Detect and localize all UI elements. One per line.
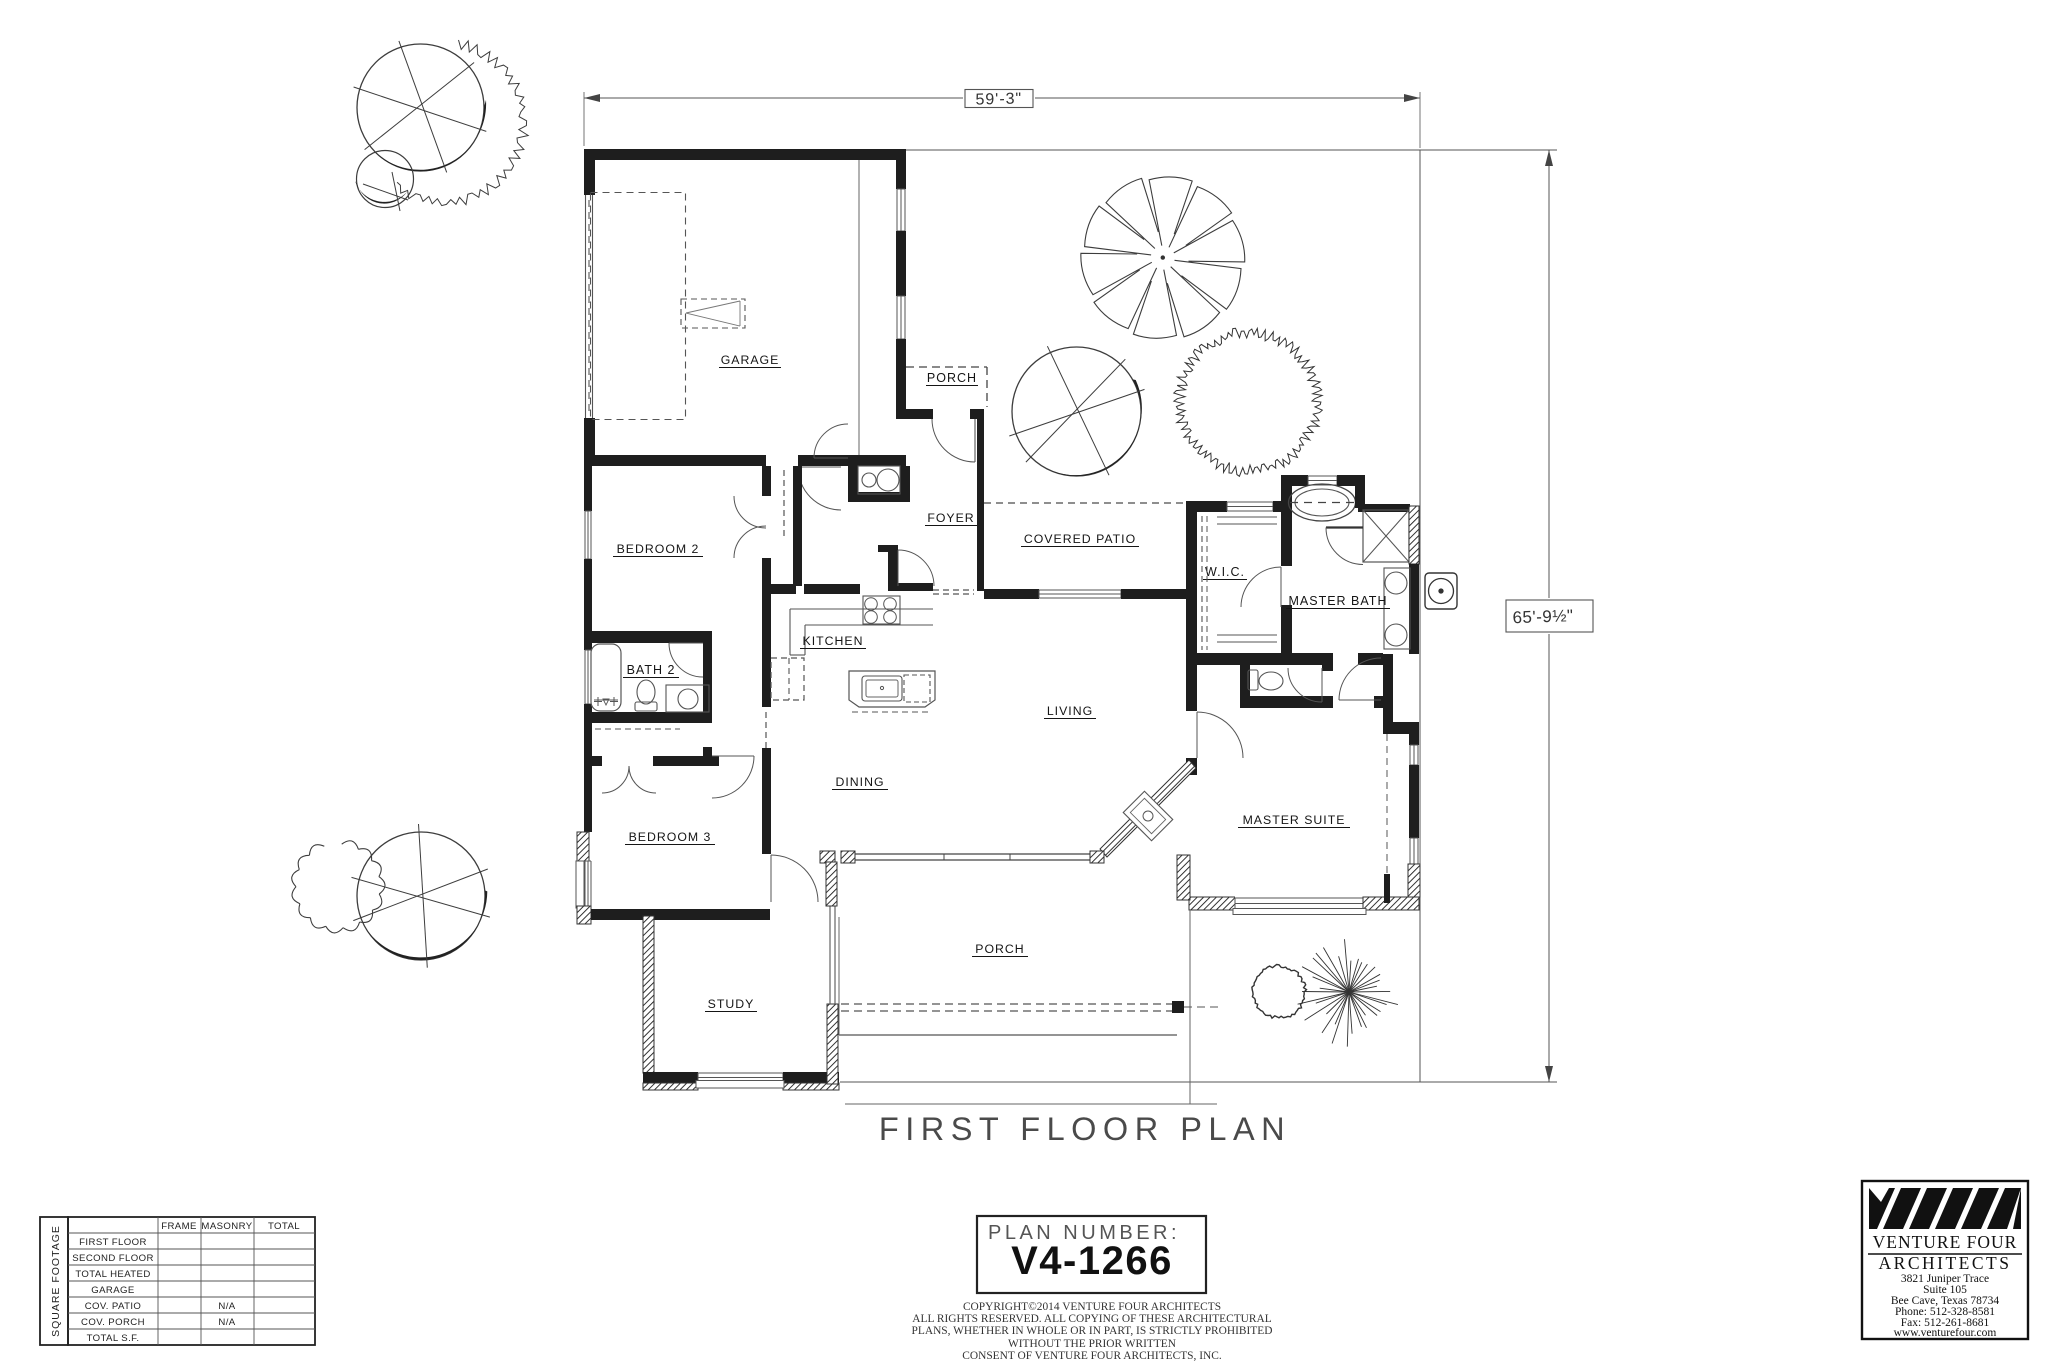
svg-text:FOYER: FOYER	[927, 511, 974, 525]
svg-text:CONSENT OF VENTURE FOUR ARCHIT: CONSENT OF VENTURE FOUR ARCHITECTS, INC.	[962, 1350, 1222, 1362]
svg-text:MASTER SUITE: MASTER SUITE	[1243, 813, 1346, 827]
svg-text:FIRST FLOOR: FIRST FLOOR	[79, 1237, 147, 1248]
svg-text:GARAGE: GARAGE	[91, 1285, 134, 1296]
svg-text:BEDROOM 2: BEDROOM 2	[617, 542, 700, 556]
svg-text:SQUARE FOOTAGE: SQUARE FOOTAGE	[50, 1225, 62, 1337]
svg-text:FRAME: FRAME	[161, 1221, 197, 1232]
svg-text:KITCHEN: KITCHEN	[803, 634, 864, 648]
svg-text:WITHOUT THE PRIOR WRITTEN: WITHOUT THE PRIOR WRITTEN	[1008, 1338, 1176, 1350]
svg-text:W.I.C.: W.I.C.	[1205, 565, 1245, 579]
svg-text:65'-9½": 65'-9½"	[1512, 606, 1574, 627]
svg-text:BATH 2: BATH 2	[627, 663, 676, 677]
svg-text:COV. PORCH: COV. PORCH	[81, 1317, 145, 1328]
svg-text:ARCHITECTS: ARCHITECTS	[1879, 1253, 2012, 1273]
svg-text:LIVING: LIVING	[1047, 704, 1093, 718]
svg-text:COV. PATIO: COV. PATIO	[85, 1301, 142, 1312]
svg-text:MASTER BATH: MASTER BATH	[1289, 594, 1388, 608]
svg-text:TOTAL: TOTAL	[268, 1221, 300, 1232]
svg-text:59'-3": 59'-3"	[975, 90, 1022, 108]
svg-text:N/A: N/A	[218, 1317, 235, 1328]
svg-text:MASONRY: MASONRY	[201, 1221, 252, 1232]
svg-text:PORCH: PORCH	[927, 371, 977, 385]
svg-text:VENTURE FOUR: VENTURE FOUR	[1873, 1232, 2018, 1252]
svg-text:www.venturefour.com: www.venturefour.com	[1894, 1327, 1997, 1339]
svg-text:GARAGE: GARAGE	[721, 353, 780, 367]
svg-text:TOTAL HEATED: TOTAL HEATED	[75, 1269, 150, 1280]
svg-text:COPYRIGHT©2014 VENTURE FOUR A: COPYRIGHT©2014 VENTURE FOUR ARCHITECTS	[963, 1301, 1221, 1313]
svg-text:COVERED PATIO: COVERED PATIO	[1024, 532, 1136, 546]
svg-text:STUDY: STUDY	[708, 997, 755, 1011]
svg-text:PLANS, WHETHER IN WHOLE OR IN: PLANS, WHETHER IN WHOLE OR IN PART, IS S…	[912, 1325, 1273, 1337]
svg-text:BEDROOM 3: BEDROOM 3	[629, 830, 712, 844]
svg-text:TOTAL S.F.: TOTAL S.F.	[87, 1333, 140, 1344]
svg-text:FIRST FLOOR PLAN: FIRST FLOOR PLAN	[879, 1111, 1291, 1147]
svg-text:V4-1266: V4-1266	[1011, 1239, 1173, 1283]
svg-text:PORCH: PORCH	[975, 942, 1024, 956]
svg-text:ALL RIGHTS RESERVED. ALL COPYI: ALL RIGHTS RESERVED. ALL COPYING OF THES…	[912, 1313, 1271, 1325]
svg-text:SECOND FLOOR: SECOND FLOOR	[72, 1253, 154, 1264]
svg-text:DINING: DINING	[835, 775, 884, 789]
svg-text:N/A: N/A	[218, 1301, 235, 1312]
